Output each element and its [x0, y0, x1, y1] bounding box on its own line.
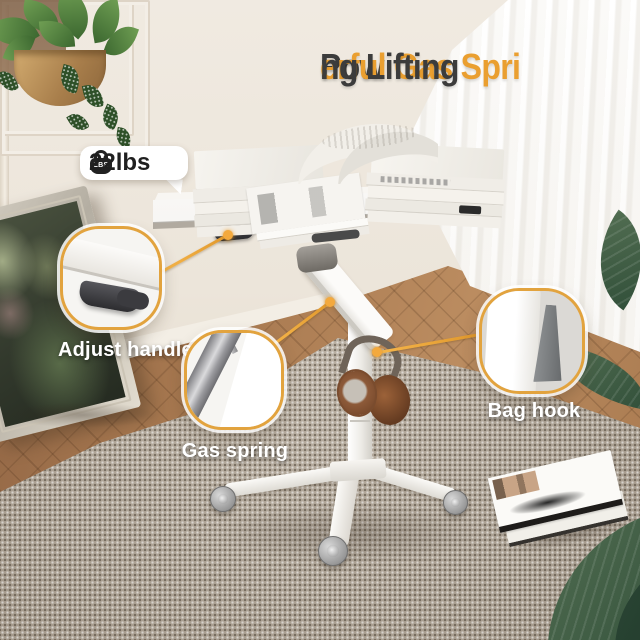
pole-seam — [350, 420, 370, 422]
adjust-handle-label: Adjust handle — [58, 339, 193, 362]
connector-dot-bag-hook — [372, 347, 382, 357]
caster-wheel-right — [443, 490, 468, 515]
open-magazine — [296, 116, 438, 184]
base-hub — [329, 458, 386, 482]
weight-value: 22lbs — [89, 149, 150, 177]
connector-dot-gas-spring — [325, 297, 335, 307]
trailing-leaf — [82, 82, 105, 109]
bag-hook-label: Bag hook — [479, 400, 589, 423]
bag-hook-photo-pole — [483, 288, 541, 394]
headline-part-3: ng Lifting — [320, 46, 459, 88]
trailing-leaf — [114, 127, 132, 148]
product-scene: Adjust handle Gas spring Bag hook LBS 22… — [0, 0, 640, 640]
connector-dot-adjust-handle — [223, 230, 233, 240]
painting-shadow — [8, 402, 158, 428]
book-logo — [459, 205, 481, 214]
weight-capacity-badge: LBS 22lbs — [80, 146, 188, 180]
hanging-planter — [0, 0, 160, 170]
caster-wheel-front — [318, 536, 348, 566]
caster-wheel-left — [210, 486, 236, 512]
trailing-leaf — [66, 109, 90, 134]
callout-adjust-handle — [60, 226, 162, 330]
gas-spring-label: Gas spring — [170, 440, 300, 463]
callout-gas-spring — [184, 330, 284, 430]
callout-bag-hook — [479, 288, 585, 394]
